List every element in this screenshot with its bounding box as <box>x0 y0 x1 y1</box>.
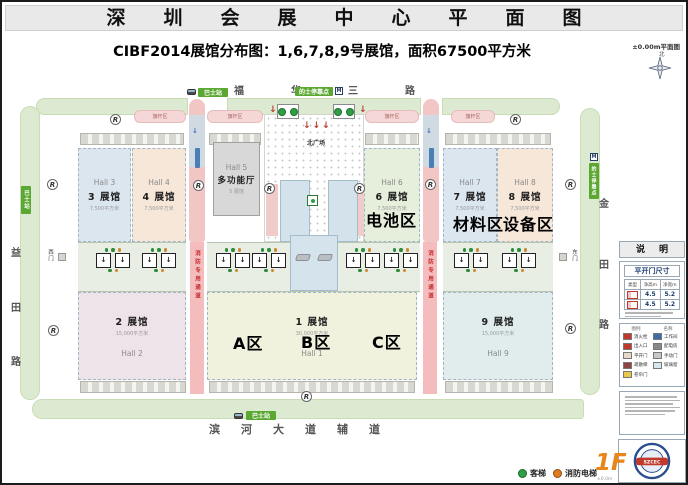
elevator-lobby-icon <box>307 195 318 206</box>
elevator-cluster <box>502 248 536 272</box>
hall-2: 2 展馆 15,000平方米 Hall 2 <box>78 292 186 380</box>
note-line <box>625 312 673 314</box>
page-title: 深圳会展中心平面图 <box>5 5 683 31</box>
door-size-table: 类型 净高m 净宽m 4.5 5.2 4.5 5.2 <box>624 279 680 310</box>
floor-level-label: ±0.0m <box>597 477 612 482</box>
passenger-elevator-icon <box>518 469 527 478</box>
hall-name: 3 展馆 <box>88 189 121 203</box>
bus-stop-badge-left: 巴士站 <box>21 186 31 214</box>
hall-4: Hall 4 4 展馆 7,500平方米 <box>132 148 186 242</box>
circled-r-icon <box>264 183 275 194</box>
svg-text:SZCEC: SZCEC <box>643 459 661 465</box>
escalator-icon <box>346 108 354 116</box>
escalator-icon <box>317 254 333 261</box>
circled-r-icon <box>193 180 204 191</box>
entrance-arrow-icon: ↓ <box>269 106 277 115</box>
hall-name: 9 展馆 <box>482 314 515 328</box>
road-bottom <box>32 399 584 419</box>
zone-label-a: A区 <box>233 330 263 354</box>
hall-en-label: Hall 2 <box>121 349 143 358</box>
hall-name: 6 展馆 <box>376 189 409 203</box>
flag-area-strip: 旗杆区 <box>134 110 186 123</box>
entrance-gate-box <box>333 104 355 119</box>
road-name-bottom: 滨河大道辅道 <box>209 421 401 437</box>
circled-r-icon <box>565 179 576 190</box>
hall-sub: 5 展馆 <box>229 188 244 195</box>
hall-en-label: Hall 7 <box>459 178 481 187</box>
elevator-cluster <box>454 248 488 272</box>
hall-name: 4 展馆 <box>143 189 176 203</box>
plaza-arrows-icon: ↓↓↓ <box>303 122 332 131</box>
escalator-icon <box>334 108 342 116</box>
hall-en-label: Hall 8 <box>514 178 536 187</box>
elevator-cluster <box>252 248 286 272</box>
door-type-icon <box>625 300 641 310</box>
metro-icon-top: M <box>335 87 343 95</box>
passenger-elevator-legend: 客梯 <box>518 468 546 479</box>
hall-en-label: Hall 5 <box>226 163 248 172</box>
bus-stop-badge-bottom: 巴士站 <box>246 411 276 420</box>
circled-r-icon <box>301 391 312 402</box>
bus-stop-badge-top: 巴士站 <box>198 88 228 97</box>
zone-label-equipment: 设备区 <box>503 211 554 235</box>
central-atrium <box>290 235 338 291</box>
booth-row <box>445 133 551 145</box>
escalator-icon <box>295 254 311 261</box>
booth-row <box>365 133 419 145</box>
elevator-cluster <box>142 248 176 272</box>
elevation-label: ±0.00m平面图 <box>562 41 684 51</box>
road-name-right: 金 田 路 <box>598 195 610 331</box>
plan-subtitle: CIBF2014展馆分布图：1,6,7,8,9号展馆，面积67500平方米 <box>2 40 642 61</box>
zone-label-material: 材料区 <box>453 211 504 235</box>
circled-r-icon <box>47 179 58 190</box>
circled-r-icon <box>354 183 365 194</box>
hall-name: 多功能厅 <box>217 174 255 186</box>
taxi-stop-badge-right: 的士停靠点 <box>589 163 599 199</box>
szcec-logo: SZCEC <box>633 442 671 480</box>
west-gate-label: 西门 <box>46 249 54 262</box>
road-right <box>580 108 600 395</box>
zone-label-c: C区 <box>372 329 402 353</box>
hall-name: 7 展馆 <box>454 189 487 203</box>
door-size-panel: 平开门尺寸 类型 净高m 净宽m 4.5 5.2 4.5 5.2 <box>619 261 685 319</box>
legend-items-right: 工作间 配电房 手动门 玻璃窗 <box>653 333 681 378</box>
flag-area-strip: 旗杆区 <box>451 110 495 123</box>
booth-row <box>80 381 186 393</box>
north-plaza-label: 北广场 <box>296 138 336 147</box>
escalator-icon <box>278 108 286 116</box>
hall-en-label: Hall 4 <box>148 178 170 187</box>
down-arrow-west: ↓ <box>192 128 198 135</box>
hall-3: Hall 3 3 展馆 7,500平方米 <box>78 148 131 242</box>
zone-label-battery: 电池区 <box>366 207 417 231</box>
central-tower <box>280 180 310 242</box>
down-arrow-east: ↓ <box>426 128 432 135</box>
szcec-logo-panel: SZCEC <box>618 439 686 483</box>
hall-en-label: Hall 6 <box>381 178 403 187</box>
escalator-icon <box>290 108 298 116</box>
hall-name: 1 展馆 <box>296 314 329 328</box>
fire-elevator-legend: 消防电梯 <box>553 468 597 479</box>
circled-r-icon <box>110 114 121 125</box>
circled-r-icon <box>565 323 576 334</box>
hall-5: Hall 5 多功能厅 5 展馆 <box>213 142 260 216</box>
zone-label-b: B区 <box>301 329 331 353</box>
taxi-stop-badge-top: 的士停靠点 <box>295 87 333 96</box>
bus-icon-bottom <box>234 413 243 419</box>
legend-header: 说明 <box>619 241 685 258</box>
hall-name: 8 展馆 <box>509 189 542 203</box>
metro-icon-right: M <box>590 153 598 161</box>
compass-icon <box>648 56 672 80</box>
door-table-title: 平开门尺寸 <box>624 265 680 277</box>
entrance-arrow-icon: ↓ <box>359 106 367 115</box>
road-name-left: 益 田 路 <box>10 244 22 368</box>
legend-notes-panel <box>619 391 685 435</box>
elevator-cluster <box>96 248 130 272</box>
hall-9: 9 展馆 15,000平方米 Hall 9 <box>443 292 553 380</box>
hall-name: 2 展馆 <box>116 314 149 328</box>
hall-area: 15,000平方米 <box>482 330 515 337</box>
road-left <box>20 106 40 400</box>
hall-en-label: Hall 3 <box>94 178 116 187</box>
flag-area-strip: 旗杆区 <box>365 110 419 123</box>
legend-items-panel: 图例 名称 消火栓 出入口 平开门 疏散梯 卷帘门 工作间 配电房 手动门 玻璃… <box>619 323 685 387</box>
booth-row <box>209 381 415 393</box>
booth-row <box>80 133 184 145</box>
elevator-cluster <box>384 248 418 272</box>
legend-items-left: 消火栓 出入口 平开门 疏散梯 卷帘门 <box>623 333 651 378</box>
walkway-sign-west <box>195 148 200 168</box>
elevator-cluster <box>216 248 250 272</box>
fire-lane-west: 消防专用通道 <box>190 242 204 394</box>
hall-en-label: Hall 9 <box>487 349 509 358</box>
flag-area-strip: 旗杆区 <box>207 110 263 123</box>
booth-row <box>445 381 553 393</box>
circled-r-icon <box>425 179 436 190</box>
floor-plan-screenshot: 深圳会展中心平面图 CIBF2014展馆分布图：1,6,7,8,9号展馆，面积6… <box>0 0 688 485</box>
road-name-top: 福华三路 <box>234 82 462 97</box>
floor-indicator: 1F <box>595 452 627 475</box>
hall-area: 7,500平方米 <box>144 205 173 212</box>
note-line <box>625 316 661 318</box>
hall-area: 15,000平方米 <box>116 330 149 337</box>
entrance-gate-box <box>277 104 299 119</box>
circled-r-icon <box>510 114 521 125</box>
east-gate-label: 东门 <box>570 249 578 262</box>
hall-area: 7,500平方米 <box>90 205 119 212</box>
circled-r-icon <box>48 325 59 336</box>
fire-lane-east: 消防专用通道 <box>423 242 437 394</box>
bus-icon <box>187 89 196 95</box>
fire-elevator-icon <box>553 469 562 478</box>
elevator-cluster <box>346 248 380 272</box>
west-gate-icon <box>58 253 66 261</box>
east-gate-icon <box>559 253 567 261</box>
walkway-sign-east <box>429 148 434 168</box>
door-type-icon <box>625 290 641 300</box>
